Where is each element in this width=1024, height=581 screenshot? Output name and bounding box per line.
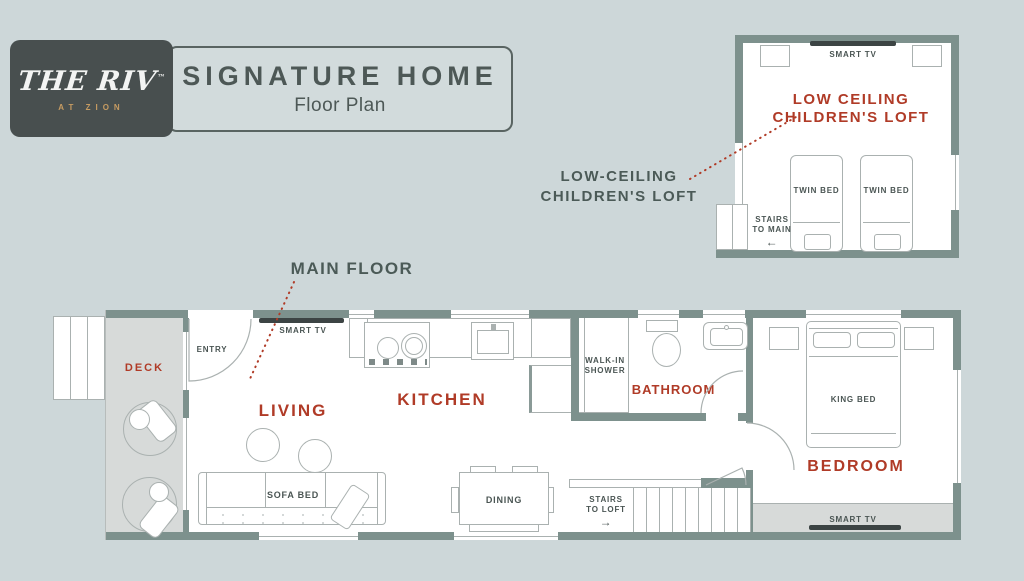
bed-folded-blanket	[804, 234, 831, 250]
deck-label: DECK	[106, 362, 183, 374]
burner	[377, 337, 399, 359]
king-bed-label: KING BED	[807, 395, 900, 405]
loft-room-label: LOW CEILING CHILDREN'S LOFT	[751, 91, 951, 127]
title-card: SIGNATURE HOME Floor Plan	[167, 46, 513, 132]
bedroom-tv-bar	[809, 525, 901, 530]
loft-smart-tv-label: SMART TV	[813, 50, 893, 60]
loft-stairs-label: STAIRS TO MAIN ←	[743, 215, 801, 247]
main-floor-callout-label: MAIN FLOOR	[290, 259, 414, 279]
toilet-bowl	[652, 333, 681, 367]
right-arrow-icon: →	[574, 517, 638, 527]
stairs-label-line2: TO LOFT	[574, 505, 638, 515]
left-arrow-icon: ←	[743, 237, 801, 247]
blanket-line	[809, 356, 898, 357]
loft-callout-line1: LOW-CEILING	[538, 167, 700, 187]
loft-callout-label: LOW-CEILING CHILDREN'S LOFT	[538, 167, 700, 207]
loft-room-label-line2: CHILDREN'S LOFT	[751, 109, 951, 127]
dining-window	[454, 532, 558, 540]
bed-folded-blanket	[874, 234, 901, 250]
loft-tv-bar	[810, 41, 896, 46]
sink-basin	[710, 328, 743, 346]
faucet	[491, 324, 496, 330]
pillow	[813, 332, 851, 348]
stove	[364, 322, 430, 368]
loft-side-table	[912, 45, 942, 67]
kitchen-sink	[471, 322, 514, 360]
entry-label: ENTRY	[186, 345, 238, 355]
bedroom-label: BEDROOM	[796, 458, 916, 476]
deck-window	[183, 332, 189, 390]
shower-label-line1: WALK-IN	[583, 356, 627, 366]
bathroom-label: BATHROOM	[611, 382, 736, 397]
sink-basin	[477, 330, 509, 354]
faucet	[724, 325, 729, 330]
window	[349, 310, 374, 318]
sofa-bed-label: SOFA BED	[253, 490, 333, 500]
burner-inner-ring	[405, 337, 423, 355]
twin-bed-right: TWIN BED	[860, 155, 913, 252]
step-line	[70, 317, 71, 399]
nightstand	[904, 327, 934, 350]
bathroom-wall	[571, 318, 579, 421]
brand-name: THE RIV™	[16, 66, 167, 97]
shower-label-line2: SHOWER	[583, 366, 627, 376]
loft-room-label-line1: LOW CEILING	[751, 91, 951, 109]
toilet-tank	[646, 320, 678, 332]
main-floor-plan: DECK ENTRY SMART TV LIVING	[105, 310, 961, 540]
ottoman	[298, 439, 332, 473]
sofa-armrest	[377, 473, 378, 524]
kitchen-label: KITCHEN	[386, 390, 498, 410]
counter-divider	[531, 319, 532, 357]
king-bed: KING BED	[806, 321, 901, 448]
walk-in-shower-label: WALK-IN SHOWER	[583, 356, 627, 376]
brand-logo: THE RIV™ AT ZION	[10, 40, 173, 137]
appliance	[529, 365, 573, 413]
stairs-to-loft	[621, 488, 751, 532]
bedroom-window	[806, 310, 901, 318]
wall-segment	[701, 478, 751, 488]
deck-side-table	[129, 409, 150, 430]
trademark-symbol: ™	[156, 72, 166, 82]
bedroom-side-window	[953, 370, 961, 483]
stair-divider	[732, 205, 733, 249]
loft-plan: SMART TV LOW CEILING CHILDREN'S LOFT TWI…	[735, 35, 959, 258]
bed-blanket-line	[863, 222, 910, 223]
dining-table: DINING	[459, 472, 549, 525]
living-smart-tv-label: SMART TV	[263, 326, 343, 336]
loft-stairs-line2: TO MAIN	[743, 225, 801, 235]
stairs-label-line1: STAIRS	[574, 495, 638, 505]
headboard-line	[809, 328, 898, 329]
ottoman	[246, 428, 280, 462]
deck-side-table	[149, 482, 169, 502]
dining-label: DINING	[460, 495, 548, 505]
twin-bed-left-label: TWIN BED	[791, 186, 842, 196]
stove-knobs	[369, 359, 427, 365]
bathroom-wall	[571, 413, 706, 421]
loft-side-table	[760, 45, 790, 67]
kitchen-window	[451, 310, 529, 318]
page-subtitle: Floor Plan	[294, 95, 386, 117]
living-label: LIVING	[236, 401, 350, 421]
floor-plan-page: THE RIV™ AT ZION SIGNATURE HOME Floor Pl…	[0, 0, 1024, 581]
step-line	[87, 317, 88, 399]
bathroom-window	[703, 310, 745, 318]
loft-callout-line2: CHILDREN'S LOFT	[538, 187, 700, 207]
deck-steps	[53, 316, 105, 400]
brand-subtitle: AT ZION	[58, 103, 124, 112]
living-tv-bar	[259, 318, 344, 323]
wall-segment	[716, 250, 743, 258]
dining-chair	[451, 487, 459, 513]
bed-fold-line	[811, 433, 896, 434]
entry-opening	[188, 310, 253, 318]
page-title: SIGNATURE HOME	[182, 61, 498, 92]
loft-stairs-line1: STAIRS	[743, 215, 801, 225]
pillow	[857, 332, 895, 348]
stairs-to-loft-label: STAIRS TO LOFT →	[574, 495, 638, 527]
stair-rail	[569, 479, 706, 488]
loft-exterior-stairs	[716, 204, 748, 250]
loft-window	[951, 155, 959, 210]
bathroom-window	[638, 310, 679, 318]
bathroom-sink	[703, 322, 748, 350]
bedroom-smart-tv-label: SMART TV	[793, 515, 913, 525]
deck-window	[183, 418, 189, 510]
living-window	[259, 532, 358, 540]
nightstand	[769, 327, 799, 350]
bedroom-media-wall: SMART TV	[753, 503, 953, 532]
walk-in-shower: WALK-IN SHOWER	[579, 318, 629, 413]
twin-bed-right-label: TWIN BED	[861, 186, 912, 196]
